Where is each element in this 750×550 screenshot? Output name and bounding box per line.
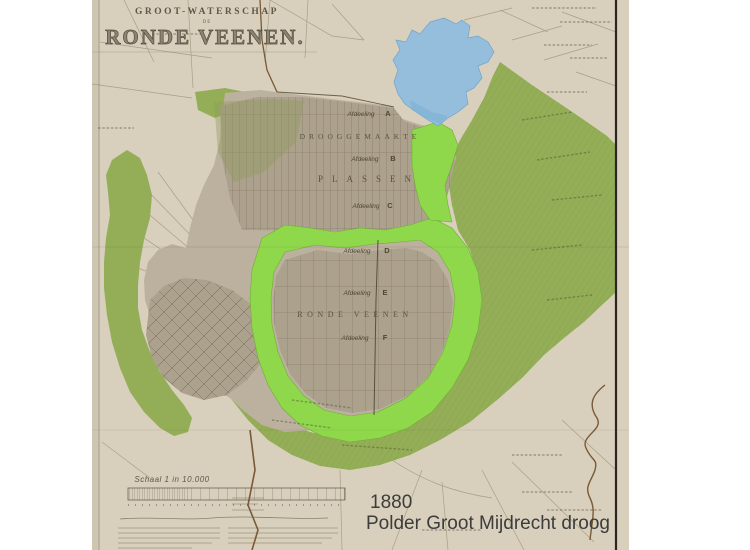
scale-bar-coarse — [188, 488, 345, 500]
afdeeling-word-a: Afdeeling — [346, 111, 374, 118]
afdeeling-letter-f: F — [383, 333, 388, 342]
afdeeling-word-d: Afdeeling — [342, 248, 370, 255]
slide: GROOT-WATERSCHAP DE RONDE VEENEN. DROOGG… — [0, 0, 750, 550]
scale-text: Schaal 1 in 10.000 — [134, 475, 209, 484]
scale-bar-fine — [128, 488, 188, 500]
map-title-main: RONDE VEENEN. — [105, 25, 304, 49]
afdeeling-letter-c: C — [387, 201, 393, 210]
afdeeling-word-e: Afdeeling — [342, 290, 370, 297]
map-canvas: GROOT-WATERSCHAP DE RONDE VEENEN. DROOGG… — [92, 0, 629, 550]
afdeeling-word-b: Afdeeling — [350, 156, 378, 163]
region-label-plassen: PLASSEN — [318, 174, 420, 184]
annotation-caption: Polder Groot Mijdrecht droog — [366, 513, 610, 534]
map-title-over: GROOT-WATERSCHAP — [135, 7, 279, 17]
afdeeling-word-c: Afdeeling — [351, 203, 379, 210]
region-label-drooggemaakte: DROOGGEMAAKTE — [300, 132, 421, 141]
afdeeling-letter-b: B — [390, 154, 396, 163]
historical-map-image: GROOT-WATERSCHAP DE RONDE VEENEN. DROOGG… — [92, 0, 629, 550]
paper-left-edge — [92, 0, 98, 550]
region-label-ronde-veenen: RONDE VEENEN — [297, 310, 412, 319]
afdeeling-word-f: Afdeeling — [340, 335, 368, 342]
afdeeling-letter-e: E — [382, 288, 387, 297]
afdeeling-letter-a: A — [385, 109, 391, 118]
annotation-year: 1880 — [370, 492, 412, 513]
